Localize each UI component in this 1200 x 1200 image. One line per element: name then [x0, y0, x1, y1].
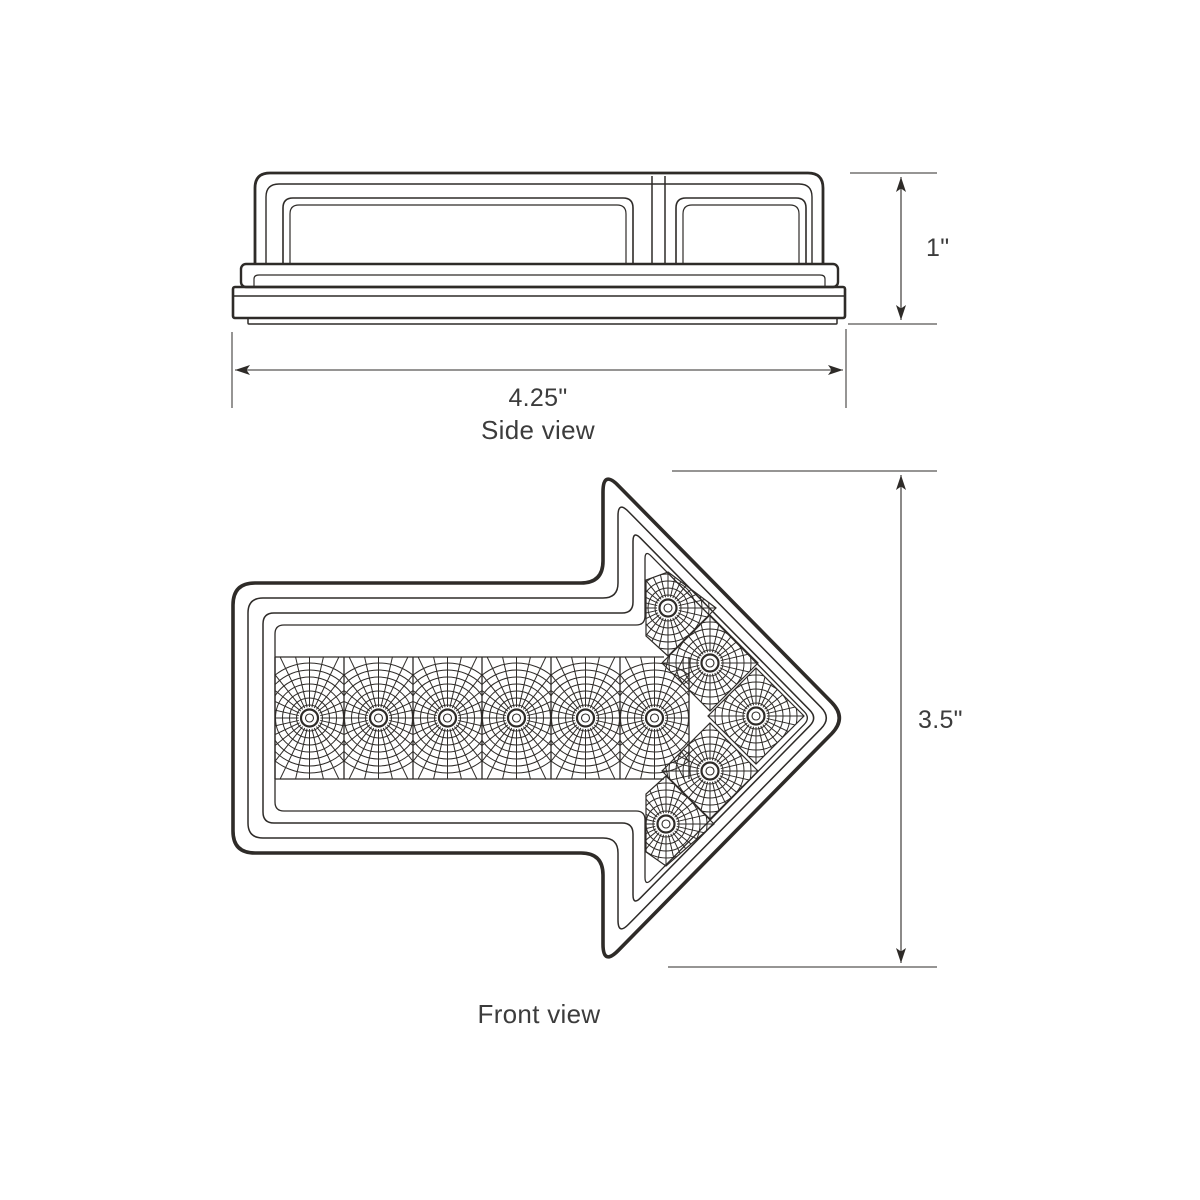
side-view-caption: Side view: [481, 415, 595, 445]
led-starburst: [295, 634, 463, 802]
front-view-drawing: [226, 479, 840, 957]
led-starburst: [226, 634, 394, 802]
led-starburst: [604, 544, 732, 672]
side-height-dimension-label: 1": [926, 234, 949, 262]
led-starburst: [433, 634, 601, 802]
side-width-dimension-label: 4.25": [508, 384, 567, 412]
led-starburst: [502, 634, 670, 802]
led-arrow-light-technical-drawing: 1" 4.25" Side view 3.5" Front view: [0, 0, 1200, 1200]
side-view-drawing: [233, 173, 845, 324]
dimension-lines: [232, 173, 937, 967]
led-starburst: [364, 634, 532, 802]
front-height-dimension-label: 3.5": [918, 706, 963, 734]
diagram-stage: 1" 4.25" Side view 3.5" Front view: [0, 0, 1200, 1200]
front-view-caption: Front view: [478, 999, 601, 1029]
